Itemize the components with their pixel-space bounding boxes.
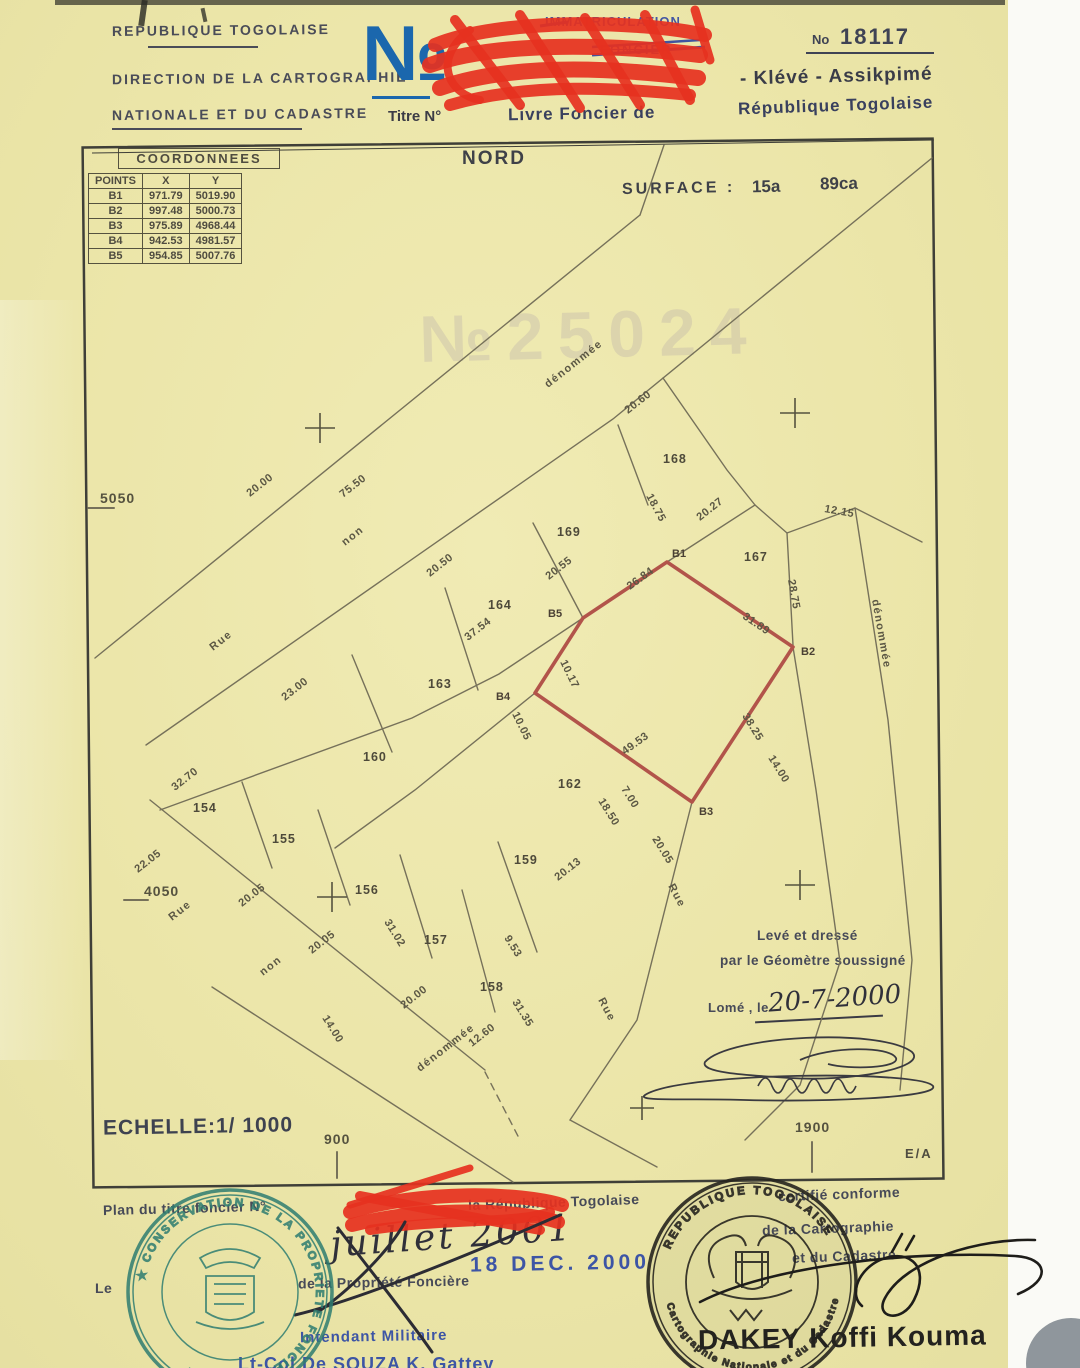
pen-cross-strokes (295, 1215, 560, 1352)
red-scribble-top (430, 10, 710, 108)
green-conservation-stamp: ★ CONSERVATION DE LA PROPRIETE FONCIERE … (128, 1190, 332, 1368)
black-cartography-stamp: REPUBLIQUE TOGOLAISE Cartographie Nation… (648, 1178, 856, 1368)
surveyor-signature (644, 1037, 933, 1100)
red-scribble-bottom (350, 1168, 562, 1230)
scanned-cadastral-plan: REPUBLIQUE TOGOLAISE DIRECTION DE LA CAR… (0, 0, 1080, 1368)
overlay-marks: ★ CONSERVATION DE LA PROPRIETE FONCIERE … (0, 0, 1080, 1368)
